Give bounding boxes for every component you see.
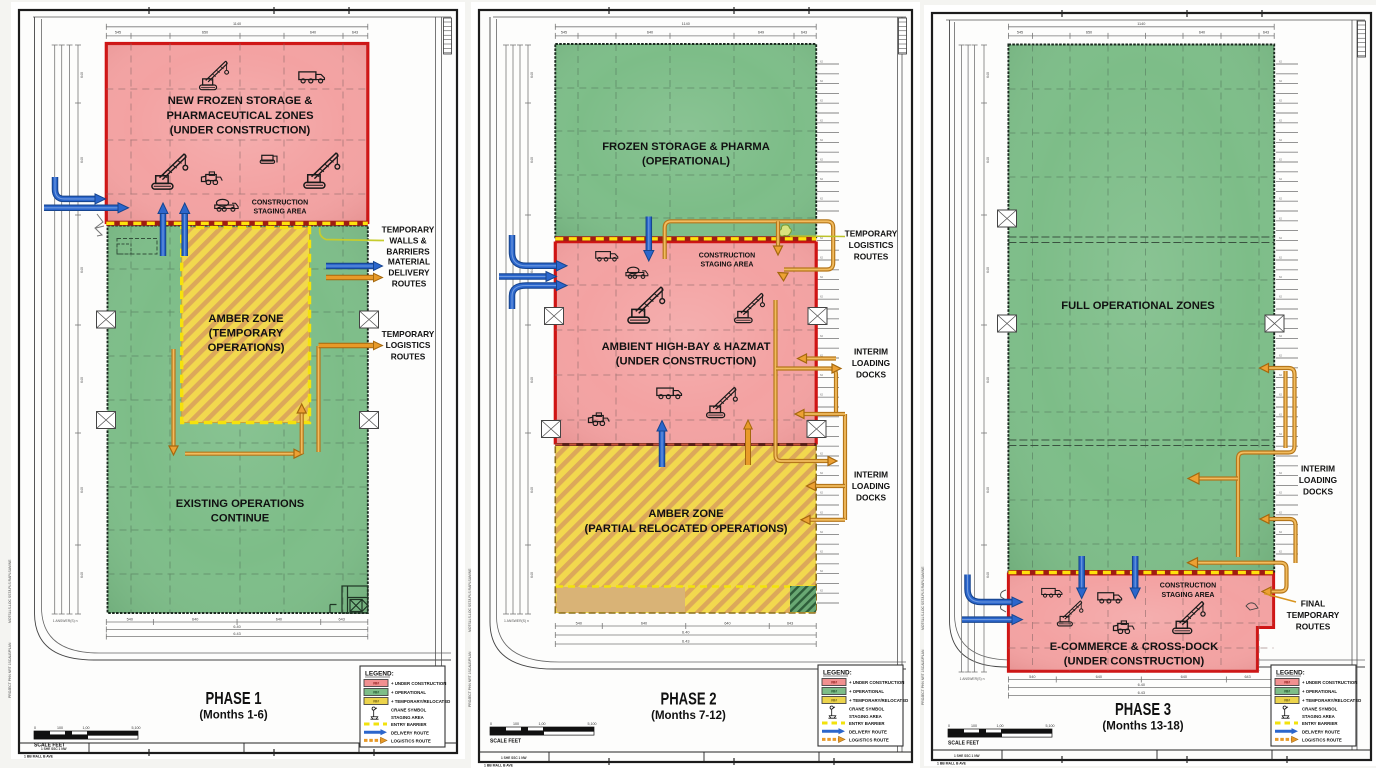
svg-text:6.40: 6.40 xyxy=(233,625,240,629)
svg-text:62: 62 xyxy=(820,589,824,593)
svg-text:#III#: #III# xyxy=(831,690,837,694)
svg-text:LEGEND:: LEGEND: xyxy=(365,671,394,678)
svg-text:MOTSLLS-LOC SST/LPLS RAPLSAMIN: MOTSLLS-LOC SST/LPLS RAPLSAMINE xyxy=(468,568,472,632)
svg-text:640: 640 xyxy=(80,377,84,383)
svg-text:CRANE SYMBOL: CRANE SYMBOL xyxy=(849,706,885,711)
svg-text:643: 643 xyxy=(787,622,793,626)
svg-text:62: 62 xyxy=(820,510,824,514)
svg-text:MOTSLLS-LOC SST/LPLS RAPLSAMIN: MOTSLLS-LOC SST/LPLS RAPLSAMINE xyxy=(921,566,925,630)
svg-text:(UNDER CONSTRUCTION): (UNDER CONSTRUCTION) xyxy=(170,125,311,137)
svg-text:62: 62 xyxy=(1279,334,1283,338)
svg-text:DOCKS: DOCKS xyxy=(856,370,886,380)
svg-text:CRANE SYMBOL: CRANE SYMBOL xyxy=(1302,706,1338,711)
svg-text:FINAL: FINAL xyxy=(1301,599,1325,609)
svg-text:+ UNDER CONSTRUCTION: + UNDER CONSTRUCTION xyxy=(391,681,446,686)
svg-text:100: 100 xyxy=(513,722,519,726)
svg-text:640: 640 xyxy=(80,267,84,273)
svg-text:(Months 1-6): (Months 1-6) xyxy=(199,710,268,722)
svg-text:AMBER ZONE: AMBER ZONE xyxy=(208,313,284,325)
svg-text:62: 62 xyxy=(820,256,824,260)
svg-text:5,100: 5,100 xyxy=(1046,724,1055,728)
svg-text:545: 545 xyxy=(115,31,121,35)
svg-text:62: 62 xyxy=(1279,373,1283,377)
svg-text:+ OPERATIONAL: + OPERATIONAL xyxy=(849,689,884,694)
svg-text:1 SHE SSC 1 NW: 1 SHE SSC 1 NW xyxy=(954,754,980,758)
svg-text:5,100: 5,100 xyxy=(132,726,141,730)
svg-text:62: 62 xyxy=(1279,197,1283,201)
svg-text:62: 62 xyxy=(820,79,824,83)
svg-text:#III#: #III# xyxy=(1284,681,1290,685)
svg-text:WALLS &: WALLS & xyxy=(389,236,426,246)
svg-text:EXISTING OPERATIONS: EXISTING OPERATIONS xyxy=(176,498,305,510)
svg-text:MATERIAL: MATERIAL xyxy=(388,257,430,267)
svg-text:+ UNDER CONSTRUCTION: + UNDER CONSTRUCTION xyxy=(1302,680,1357,685)
svg-text:640: 640 xyxy=(724,622,730,626)
svg-text:640: 640 xyxy=(1199,31,1205,35)
svg-text:640: 640 xyxy=(530,157,534,163)
svg-text:DELIVERY: DELIVERY xyxy=(388,268,430,278)
svg-text:640: 640 xyxy=(276,618,282,622)
svg-text:1 ANSWER(S) n: 1 ANSWER(S) n xyxy=(960,677,985,681)
svg-text:STAGING AREA: STAGING AREA xyxy=(391,715,425,720)
svg-text:1 BB MALL B AVE: 1 BB MALL B AVE xyxy=(24,755,54,759)
svg-text:(UNDER CONSTRUCTION): (UNDER CONSTRUCTION) xyxy=(616,356,757,368)
svg-text:5,100: 5,100 xyxy=(588,722,597,726)
svg-text:CONTINUE: CONTINUE xyxy=(211,513,270,525)
svg-text:ROUTES: ROUTES xyxy=(854,252,889,262)
svg-text:643: 643 xyxy=(352,31,358,35)
svg-text:DELIVERY ROUTE: DELIVERY ROUTE xyxy=(391,730,429,735)
svg-text:62: 62 xyxy=(820,471,824,475)
svg-text:640: 640 xyxy=(80,572,84,578)
svg-text:640: 640 xyxy=(192,618,198,622)
svg-text:62: 62 xyxy=(1279,432,1283,436)
svg-text:1 ANSWER(S) n: 1 ANSWER(S) n xyxy=(504,619,529,623)
svg-text:640: 640 xyxy=(530,572,534,578)
svg-text:#III#: #III# xyxy=(831,681,837,685)
svg-text:62: 62 xyxy=(1279,354,1283,358)
svg-text:62: 62 xyxy=(820,158,824,162)
svg-text:62: 62 xyxy=(820,138,824,142)
svg-text:(UNDER CONSTRUCTION): (UNDER CONSTRUCTION) xyxy=(1064,656,1205,668)
svg-text:62: 62 xyxy=(820,550,824,554)
svg-text:BARRIERS: BARRIERS xyxy=(386,247,430,257)
svg-text:62: 62 xyxy=(820,334,824,338)
svg-text:62: 62 xyxy=(1279,275,1283,279)
svg-text:62: 62 xyxy=(1279,60,1283,64)
svg-text:STAGING AREA: STAGING AREA xyxy=(701,262,754,269)
svg-text:PHASE 1: PHASE 1 xyxy=(206,688,262,708)
svg-text:PROJECT PHN NRT 1SCALE/PLAN: PROJECT PHN NRT 1SCALE/PLAN xyxy=(8,642,12,698)
svg-text:AMBIENT HIGH-BAY & HAZMAT: AMBIENT HIGH-BAY & HAZMAT xyxy=(602,341,771,353)
svg-text:62: 62 xyxy=(1279,295,1283,299)
svg-text:640: 640 xyxy=(647,31,653,35)
svg-text:+ TEMPORARY/RELOCATED: + TEMPORARY/RELOCATED xyxy=(391,699,450,704)
svg-text:62: 62 xyxy=(1279,216,1283,220)
svg-text:62: 62 xyxy=(820,569,824,573)
svg-text:62: 62 xyxy=(820,373,824,377)
svg-text:#III#: #III# xyxy=(1284,699,1290,703)
svg-text:62: 62 xyxy=(820,275,824,279)
svg-text:(PARTIAL RELOCATED OPERATIONS): (PARTIAL RELOCATED OPERATIONS) xyxy=(584,523,787,535)
svg-text:6.43: 6.43 xyxy=(233,632,240,636)
svg-text:640: 640 xyxy=(80,72,84,78)
svg-text:TEMPORARY: TEMPORARY xyxy=(1287,610,1340,620)
svg-text:62: 62 xyxy=(1279,393,1283,397)
svg-text:SCALE FEET: SCALE FEET xyxy=(948,741,979,747)
svg-text:62: 62 xyxy=(1279,491,1283,495)
svg-text:100: 100 xyxy=(57,726,63,730)
svg-text:62: 62 xyxy=(1279,177,1283,181)
svg-text:DELIVERY ROUTE: DELIVERY ROUTE xyxy=(849,729,887,734)
svg-text:540: 540 xyxy=(1029,675,1035,679)
svg-text:62: 62 xyxy=(820,530,824,534)
svg-text:(TEMPORARY: (TEMPORARY xyxy=(209,328,284,340)
svg-text:LOGISTICS ROUTE: LOGISTICS ROUTE xyxy=(391,739,431,744)
svg-text:STAGING AREA: STAGING AREA xyxy=(1302,714,1336,719)
svg-text:640: 640 xyxy=(530,72,534,78)
svg-text:640: 640 xyxy=(1096,675,1102,679)
svg-text:643: 643 xyxy=(338,618,344,622)
svg-text:62: 62 xyxy=(820,491,824,495)
svg-text:ROUTES: ROUTES xyxy=(392,279,427,289)
svg-text:6.40: 6.40 xyxy=(682,631,689,635)
svg-text:SCALE FEET: SCALE FEET xyxy=(34,743,65,749)
svg-text:640: 640 xyxy=(986,72,990,78)
svg-text:640: 640 xyxy=(530,487,534,493)
svg-text:640: 640 xyxy=(530,377,534,383)
svg-text:0: 0 xyxy=(490,722,492,726)
svg-text:CRANE SYMBOL: CRANE SYMBOL xyxy=(391,707,427,712)
svg-text:62: 62 xyxy=(1279,79,1283,83)
svg-text:PROJECT PHN NRT 1SCALE/PLAN: PROJECT PHN NRT 1SCALE/PLAN xyxy=(468,651,472,707)
svg-text:#III#: #III# xyxy=(1284,690,1290,694)
svg-text:+ UNDER CONSTRUCTION: + UNDER CONSTRUCTION xyxy=(849,680,904,685)
svg-text:ENTRY BARRIER: ENTRY BARRIER xyxy=(1302,721,1338,726)
svg-text:62: 62 xyxy=(820,295,824,299)
svg-text:DOCKS: DOCKS xyxy=(856,493,886,503)
svg-text:FULL OPERATIONAL ZONES: FULL OPERATIONAL ZONES xyxy=(1061,300,1215,312)
svg-text:STAGING AREA: STAGING AREA xyxy=(1162,592,1215,599)
svg-text:SCALE FEET: SCALE FEET xyxy=(490,739,521,745)
svg-text:ENTRY BARRIER: ENTRY BARRIER xyxy=(849,721,885,726)
svg-text:TEMPORARY: TEMPORARY xyxy=(382,329,435,339)
svg-text:STAGING AREA: STAGING AREA xyxy=(254,208,307,215)
svg-text:0: 0 xyxy=(948,724,950,728)
svg-text:LOADING: LOADING xyxy=(852,481,890,491)
svg-text:STAGING AREA: STAGING AREA xyxy=(849,714,883,719)
svg-text:640: 640 xyxy=(986,377,990,383)
svg-text:1,00: 1,00 xyxy=(539,722,546,726)
svg-text:643: 643 xyxy=(1263,31,1269,35)
svg-text:1 BB MALL B AVE: 1 BB MALL B AVE xyxy=(484,764,514,768)
svg-text:640: 640 xyxy=(986,157,990,163)
svg-text:(Months 7-12): (Months 7-12) xyxy=(651,710,726,722)
svg-text:TEMPORARY: TEMPORARY xyxy=(845,229,898,239)
svg-text:62: 62 xyxy=(1279,236,1283,240)
svg-text:LOGISTICS ROUTE: LOGISTICS ROUTE xyxy=(849,738,889,743)
svg-text:649: 649 xyxy=(758,31,764,35)
svg-text:1 BB MALL B AVE: 1 BB MALL B AVE xyxy=(937,762,967,766)
svg-text:62: 62 xyxy=(820,99,824,103)
svg-text:#III#: #III# xyxy=(373,682,379,686)
svg-text:PHASE 2: PHASE 2 xyxy=(661,689,717,709)
svg-text:#III#: #III# xyxy=(373,691,379,695)
svg-text:LOADING: LOADING xyxy=(1299,475,1337,485)
svg-text:#III#: #III# xyxy=(373,700,379,704)
svg-text:62: 62 xyxy=(820,118,824,122)
svg-text:1140: 1140 xyxy=(682,22,690,26)
svg-text:INTERIM: INTERIM xyxy=(1301,464,1335,474)
svg-text:545: 545 xyxy=(1017,31,1023,35)
svg-text:+ OPERATIONAL: + OPERATIONAL xyxy=(391,690,426,695)
svg-text:CONSTRUCTION: CONSTRUCTION xyxy=(252,200,308,207)
svg-text:DELIVERY ROUTE: DELIVERY ROUTE xyxy=(1302,729,1340,734)
svg-text:INTERIM: INTERIM xyxy=(854,347,888,357)
svg-text:62: 62 xyxy=(1279,412,1283,416)
svg-text:643: 643 xyxy=(801,31,807,35)
svg-text:MOTSLLS-LOC SST/LPLS RAPLSAMIN: MOTSLLS-LOC SST/LPLS RAPLSAMINE xyxy=(8,559,12,623)
svg-text:62: 62 xyxy=(1279,471,1283,475)
svg-text:640: 640 xyxy=(986,487,990,493)
svg-text:640: 640 xyxy=(986,572,990,578)
svg-text:LOADING: LOADING xyxy=(852,358,890,368)
svg-text:FROZEN STORAGE & PHARMA: FROZEN STORAGE & PHARMA xyxy=(602,141,770,153)
svg-text:E-COMMERCE & CROSS-DOCK: E-COMMERCE & CROSS-DOCK xyxy=(1050,641,1218,653)
svg-text:+ TEMPORARY/RELOCATED: + TEMPORARY/RELOCATED xyxy=(849,698,908,703)
svg-text:LOGISTICS: LOGISTICS xyxy=(849,240,894,250)
svg-text:62: 62 xyxy=(1279,530,1283,534)
svg-text:(OPERATIONAL): (OPERATIONAL) xyxy=(642,156,730,168)
svg-text:62: 62 xyxy=(1279,138,1283,142)
svg-text:650: 650 xyxy=(202,31,208,35)
svg-text:540: 540 xyxy=(127,618,133,622)
svg-text:62: 62 xyxy=(1279,99,1283,103)
svg-text:643: 643 xyxy=(1244,675,1250,679)
svg-text:545: 545 xyxy=(561,31,567,35)
svg-text:640: 640 xyxy=(1181,675,1187,679)
svg-text:0: 0 xyxy=(34,726,36,730)
svg-text:LEGEND:: LEGEND: xyxy=(823,670,852,677)
svg-text:1140: 1140 xyxy=(233,22,241,26)
svg-text:62: 62 xyxy=(1279,118,1283,122)
svg-text:640: 640 xyxy=(80,487,84,493)
svg-text:PHARMACEUTICAL ZONES: PHARMACEUTICAL ZONES xyxy=(166,110,314,122)
svg-text:62: 62 xyxy=(820,393,824,397)
svg-text:+ OPERATIONAL: + OPERATIONAL xyxy=(1302,689,1337,694)
svg-text:CONSTRUCTION: CONSTRUCTION xyxy=(1160,583,1216,590)
svg-text:62: 62 xyxy=(1279,550,1283,554)
svg-text:640: 640 xyxy=(986,267,990,273)
svg-text:ENTRY BARRIER: ENTRY BARRIER xyxy=(391,722,427,727)
svg-text:+ TEMPORARY/RELOCATED: + TEMPORARY/RELOCATED xyxy=(1302,698,1361,703)
svg-text:1 SHE SSC 1 NW: 1 SHE SSC 1 NW xyxy=(501,756,527,760)
svg-text:62: 62 xyxy=(820,60,824,64)
svg-text:PHASE 3: PHASE 3 xyxy=(1115,699,1171,719)
svg-text:LEGEND:: LEGEND: xyxy=(1276,670,1305,677)
svg-text:6.43: 6.43 xyxy=(682,640,689,644)
svg-text:INTERIM: INTERIM xyxy=(854,470,888,480)
svg-text:640: 640 xyxy=(641,622,647,626)
svg-text:62: 62 xyxy=(1279,158,1283,162)
svg-text:CONSTRUCTION: CONSTRUCTION xyxy=(699,253,755,260)
svg-text:LOGISTICS ROUTE: LOGISTICS ROUTE xyxy=(1302,738,1342,743)
svg-text:540: 540 xyxy=(576,622,582,626)
svg-text:6.40: 6.40 xyxy=(1138,683,1145,687)
svg-text:62: 62 xyxy=(820,197,824,201)
svg-text:640: 640 xyxy=(310,31,316,35)
svg-text:OPERATIONS): OPERATIONS) xyxy=(208,342,285,354)
svg-text:NEW FROZEN STORAGE &: NEW FROZEN STORAGE & xyxy=(168,95,313,107)
svg-text:TEMPORARY: TEMPORARY xyxy=(382,225,435,235)
svg-text:LOGISTICS: LOGISTICS xyxy=(386,340,431,350)
svg-text:1,00: 1,00 xyxy=(83,726,90,730)
svg-text:AMBER ZONE: AMBER ZONE xyxy=(648,508,724,520)
svg-text:DOCKS: DOCKS xyxy=(1303,487,1333,497)
svg-text:#III#: #III# xyxy=(831,699,837,703)
svg-text:ROUTES: ROUTES xyxy=(391,352,426,362)
svg-text:100: 100 xyxy=(971,724,977,728)
svg-text:650: 650 xyxy=(1086,31,1092,35)
svg-text:1 ANSWER(S) n: 1 ANSWER(S) n xyxy=(53,619,78,623)
svg-text:62: 62 xyxy=(1279,256,1283,260)
svg-text:62: 62 xyxy=(1279,510,1283,514)
svg-text:640: 640 xyxy=(80,157,84,163)
svg-text:(Months 13-18): (Months 13-18) xyxy=(1102,721,1183,733)
svg-text:1,00: 1,00 xyxy=(997,724,1004,728)
svg-text:PROJECT PHN NRT 1SCALE/PLAN: PROJECT PHN NRT 1SCALE/PLAN xyxy=(921,649,925,705)
svg-text:6.43: 6.43 xyxy=(1138,691,1145,695)
svg-text:62: 62 xyxy=(820,177,824,181)
svg-text:1140: 1140 xyxy=(1137,22,1145,26)
svg-text:62: 62 xyxy=(820,452,824,456)
svg-text:ROUTES: ROUTES xyxy=(1296,622,1331,632)
